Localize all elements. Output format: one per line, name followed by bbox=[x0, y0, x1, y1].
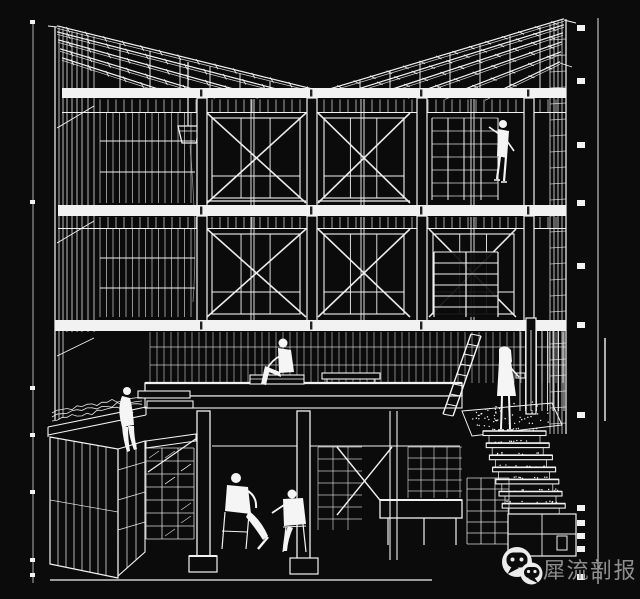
figure-sitting-woman-planter bbox=[119, 387, 137, 452]
wechat-eye bbox=[527, 570, 530, 573]
basement bbox=[50, 411, 462, 580]
figure-seated-man-left bbox=[222, 473, 268, 549]
wechat-icon-small bbox=[521, 563, 543, 585]
wechat-eye bbox=[511, 558, 515, 562]
article-image-frame: 犀流剖报 bbox=[0, 0, 640, 599]
figure-climbing-rack bbox=[489, 120, 514, 182]
stairs bbox=[467, 428, 576, 556]
wechat-eye bbox=[520, 558, 524, 562]
wall-left bbox=[55, 26, 94, 420]
shelf-rack bbox=[434, 252, 498, 317]
crate-stack bbox=[146, 434, 196, 539]
watermark-text: 犀流剖报 bbox=[543, 558, 637, 583]
architectural-section-drawing: 犀流剖报 bbox=[0, 0, 640, 599]
wechat-bubble bbox=[524, 567, 540, 578]
wechat-eye bbox=[533, 570, 536, 573]
